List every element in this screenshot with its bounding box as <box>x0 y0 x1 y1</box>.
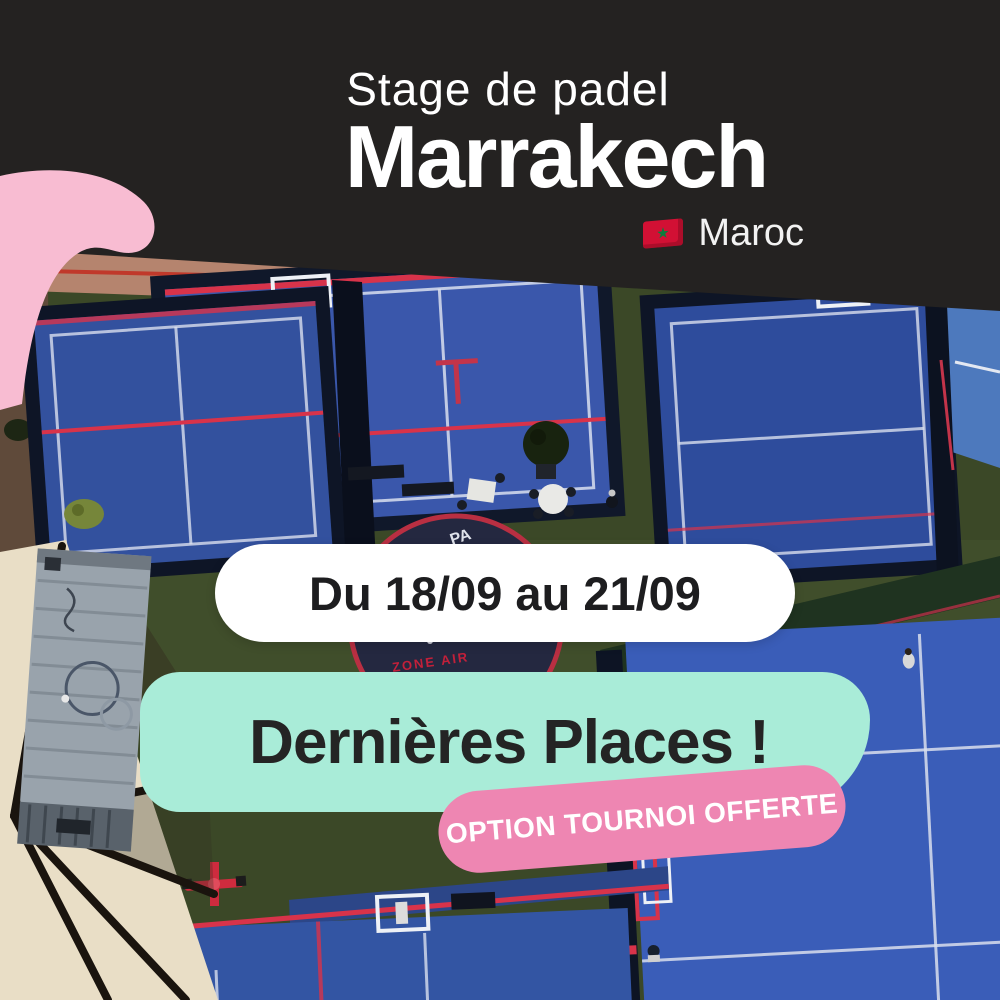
pink-swoosh-shape <box>0 0 200 440</box>
country-label: Maroc <box>698 212 804 255</box>
poster-title: Marrakech <box>345 106 767 208</box>
morocco-flag-icon: ★ <box>643 218 683 248</box>
tournament-offer-text: OPTION TOURNOI OFFERTE <box>445 788 839 851</box>
round-table <box>538 484 568 514</box>
square-table <box>467 478 497 503</box>
flag-star: ★ <box>657 225 670 241</box>
container-roof <box>17 548 151 851</box>
country-row: ★ Maroc <box>643 212 804 255</box>
padel-camp-poster: PA ZONE AIR <box>0 0 1000 1000</box>
date-range-badge: Du 18/09 au 21/09 <box>215 544 795 642</box>
availability-text: Dernières Places ! <box>241 707 769 778</box>
player-figure <box>647 945 660 963</box>
date-range-text: Du 18/09 au 21/09 <box>309 566 701 621</box>
tree <box>523 421 569 467</box>
